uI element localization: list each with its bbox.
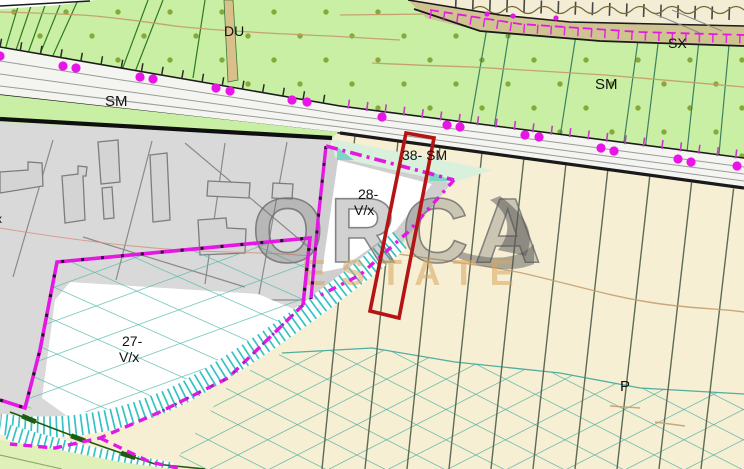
label-parcel-27-number: 27- <box>122 333 143 349</box>
cadastral-map-canvas[interactable]: ORCA ESTATE <box>0 0 744 469</box>
label-parcel-38: 38- SM <box>402 147 447 163</box>
label-parcel-27-type: V/x <box>119 349 139 365</box>
label-sx: SX <box>668 35 687 51</box>
label-du: DU <box>224 23 244 39</box>
label-sm-upper: SM <box>595 76 618 93</box>
label-parcel-28-number: 28- <box>358 186 379 202</box>
watermark: ORCA ESTATE <box>252 180 547 293</box>
watermark-estate-text: ESTATE <box>302 252 529 293</box>
label-parcel-28-type: V/x <box>354 202 374 218</box>
label-p: P <box>620 378 630 395</box>
cadastral-map-viewport[interactable]: ORCA ESTATE <box>0 0 744 469</box>
label-sm-road: SM <box>105 93 128 110</box>
label-edge-partial: x <box>0 212 2 226</box>
